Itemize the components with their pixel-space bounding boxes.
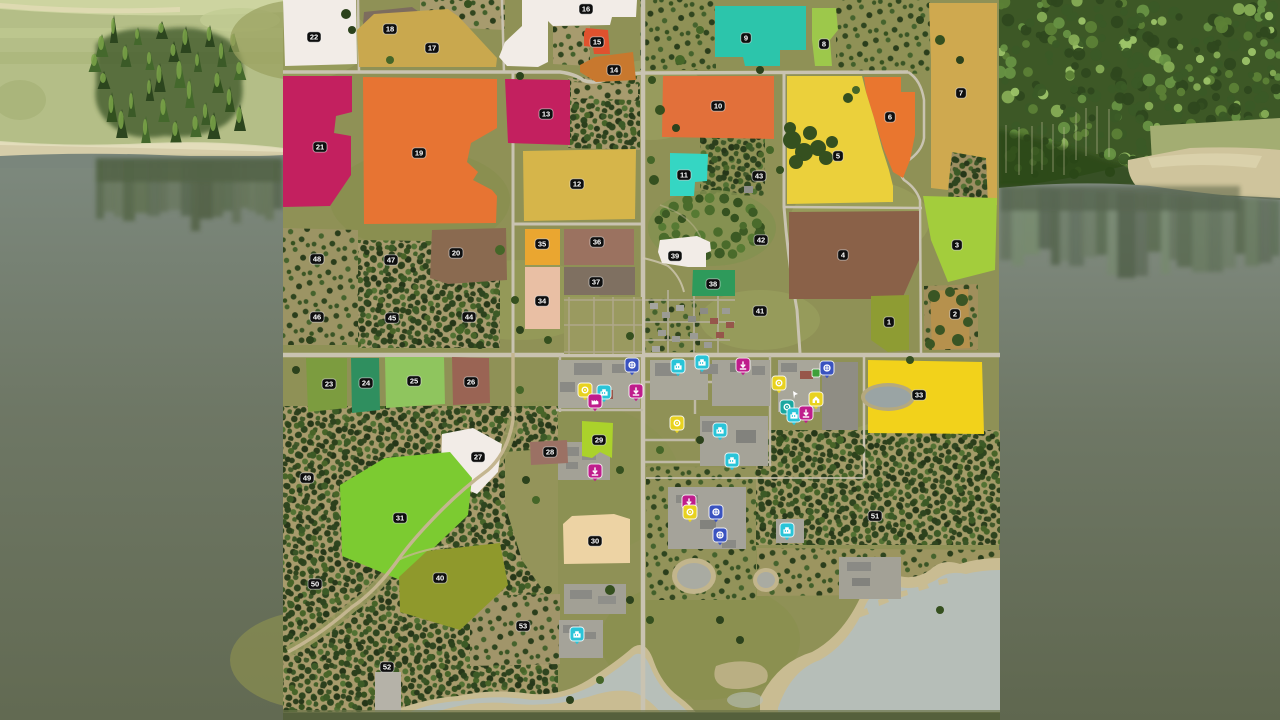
svg-text:17: 17 xyxy=(428,44,436,53)
svg-text:10: 10 xyxy=(714,102,722,111)
svg-text:34: 34 xyxy=(538,297,547,306)
svg-text:9: 9 xyxy=(744,34,748,43)
svg-text:29: 29 xyxy=(595,436,603,445)
svg-text:30: 30 xyxy=(591,537,599,546)
svg-text:25: 25 xyxy=(410,377,418,386)
svg-text:18: 18 xyxy=(386,25,394,34)
svg-text:33: 33 xyxy=(915,391,923,400)
svg-text:28: 28 xyxy=(546,448,554,457)
svg-text:24: 24 xyxy=(362,379,371,388)
svg-text:8: 8 xyxy=(822,40,826,49)
svg-text:1: 1 xyxy=(887,318,891,327)
svg-text:21: 21 xyxy=(316,143,324,152)
svg-text:40: 40 xyxy=(436,574,444,583)
svg-text:41: 41 xyxy=(756,307,764,316)
svg-text:44: 44 xyxy=(465,313,474,322)
svg-text:2: 2 xyxy=(953,310,957,319)
svg-text:53: 53 xyxy=(519,622,527,631)
svg-text:13: 13 xyxy=(542,110,550,119)
svg-text:5: 5 xyxy=(836,152,840,161)
svg-text:50: 50 xyxy=(311,580,319,589)
svg-text:12: 12 xyxy=(573,180,581,189)
svg-text:6: 6 xyxy=(888,113,892,122)
svg-text:16: 16 xyxy=(582,5,590,14)
svg-text:37: 37 xyxy=(592,278,600,287)
svg-text:38: 38 xyxy=(709,280,717,289)
svg-text:27: 27 xyxy=(474,453,482,462)
svg-text:36: 36 xyxy=(593,238,601,247)
svg-text:42: 42 xyxy=(757,236,765,245)
svg-text:52: 52 xyxy=(383,663,391,672)
svg-text:51: 51 xyxy=(871,512,879,521)
svg-text:14: 14 xyxy=(610,66,619,75)
svg-text:19: 19 xyxy=(415,149,423,158)
svg-text:26: 26 xyxy=(467,378,475,387)
svg-text:45: 45 xyxy=(388,314,396,323)
svg-text:22: 22 xyxy=(310,33,318,42)
svg-text:15: 15 xyxy=(593,38,601,47)
svg-text:20: 20 xyxy=(452,249,460,258)
svg-text:47: 47 xyxy=(387,256,395,265)
svg-text:48: 48 xyxy=(313,255,321,264)
svg-text:35: 35 xyxy=(538,240,546,249)
svg-text:39: 39 xyxy=(671,252,679,261)
svg-text:11: 11 xyxy=(680,171,688,180)
svg-text:43: 43 xyxy=(755,172,763,181)
svg-text:31: 31 xyxy=(396,514,404,523)
svg-text:3: 3 xyxy=(955,241,959,250)
svg-text:23: 23 xyxy=(325,380,333,389)
svg-text:49: 49 xyxy=(303,474,311,483)
svg-text:46: 46 xyxy=(313,313,321,322)
svg-text:7: 7 xyxy=(959,89,963,98)
